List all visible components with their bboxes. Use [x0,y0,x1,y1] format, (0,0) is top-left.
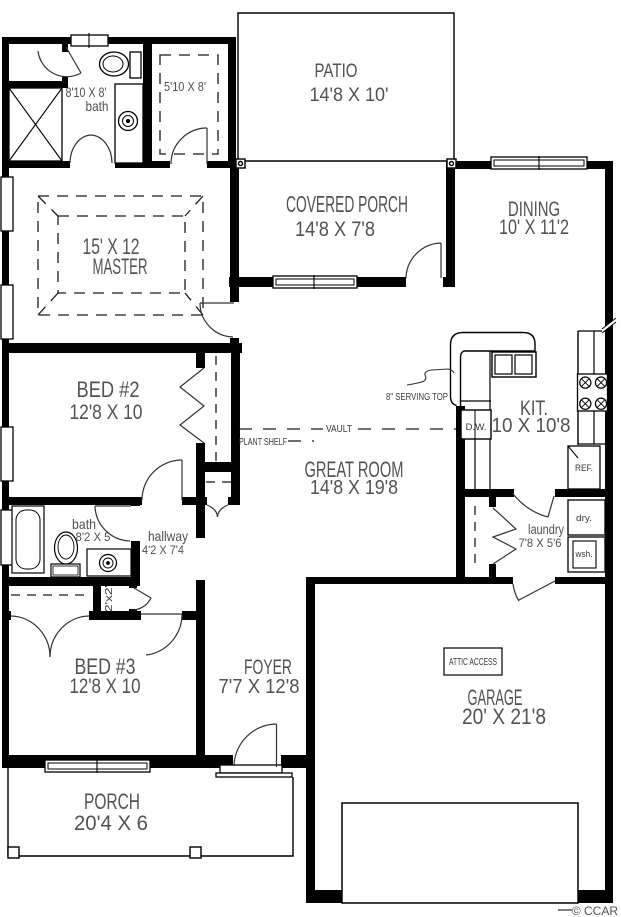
svg-text:PORCH: PORCH [84,789,140,814]
svg-text:2'x2': 2'x2' [104,585,115,612]
svg-text:14'8 X 7'8: 14'8 X 7'8 [295,218,375,241]
svg-text:ATTIC ACCESS: ATTIC ACCESS [449,657,497,668]
svg-text:8" SERVING TOP: 8" SERVING TOP [386,392,448,403]
svg-text:20' X 21'8: 20' X 21'8 [462,704,546,729]
svg-text:MASTER: MASTER [93,254,148,279]
svg-text:wsh.: wsh. [575,549,593,559]
svg-text:bath: bath [86,98,109,114]
svg-text:D.W.: D.W. [466,422,487,432]
svg-text:12'8 X 10: 12'8 X 10 [70,401,143,424]
svg-text:© CCAR: © CCAR [572,904,619,917]
svg-text:VAULT: VAULT [326,424,352,435]
svg-text:PLANT SHELF: PLANT SHELF [239,437,287,448]
svg-text:dry.: dry. [576,513,592,523]
svg-text:hallway: hallway [148,528,188,544]
svg-text:10 X 10'8: 10 X 10'8 [492,415,571,437]
svg-text:COVERED PORCH: COVERED PORCH [286,191,408,217]
svg-text:14'8 X 19'8: 14'8 X 19'8 [310,477,398,499]
svg-text:8'2 X 5: 8'2 X 5 [76,530,111,544]
svg-text:12'8 X 10: 12'8 X 10 [70,675,141,698]
svg-text:REF.: REF. [575,463,593,473]
svg-text:BED #2: BED #2 [77,377,140,402]
svg-text:14'8 X 10': 14'8 X 10' [310,85,389,106]
svg-text:4'2 X 7'4: 4'2 X 7'4 [142,543,184,557]
svg-text:7'8 X 5'6: 7'8 X 5'6 [519,536,562,550]
svg-text:PATIO: PATIO [315,61,358,82]
svg-text:laundry: laundry [528,521,564,537]
svg-text:5'10 X 8': 5'10 X 8' [164,79,206,94]
svg-text:10' X 11'2: 10' X 11'2 [499,216,569,239]
svg-text:20'4 X 6: 20'4 X 6 [74,812,148,835]
svg-text:7'7 X 12'8: 7'7 X 12'8 [219,676,300,698]
